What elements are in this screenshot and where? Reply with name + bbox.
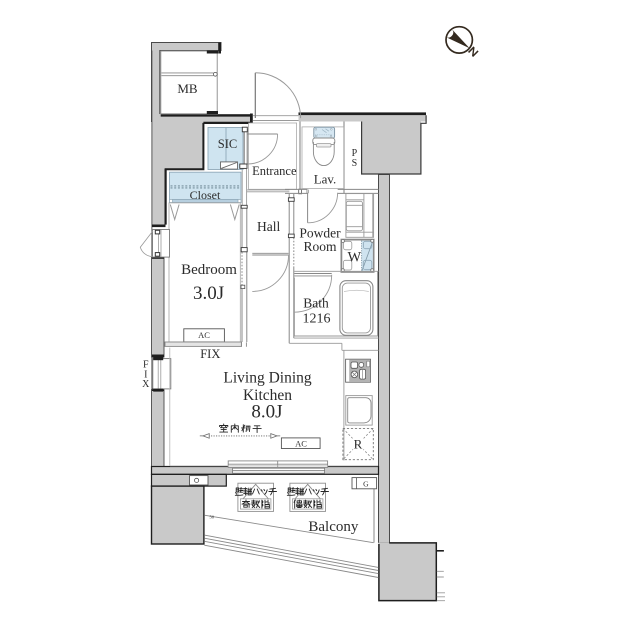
svg-text:Hall: Hall (257, 219, 280, 234)
svg-text:Entrance: Entrance (252, 164, 297, 178)
svg-text:X: X (142, 379, 150, 390)
svg-text:AC: AC (295, 438, 307, 448)
svg-text:FIX: FIX (200, 347, 220, 361)
svg-text:SIC: SIC (218, 137, 237, 151)
svg-text:G: G (363, 480, 369, 489)
svg-text:Bedroom: Bedroom (181, 262, 237, 278)
svg-text:8.0J: 8.0J (251, 401, 282, 422)
svg-text:Room: Room (303, 239, 337, 254)
svg-text:Lav.: Lav. (314, 171, 337, 186)
svg-text:S: S (352, 158, 358, 169)
svg-text:Closet: Closet (190, 188, 221, 202)
svg-text:Living Dining: Living Dining (223, 370, 312, 387)
svg-text:3.0J: 3.0J (193, 283, 224, 304)
svg-text:Bath: Bath (303, 296, 329, 311)
svg-text:MB: MB (177, 81, 198, 96)
svg-text:R: R (354, 436, 363, 451)
svg-text:Balcony: Balcony (308, 519, 358, 535)
svg-text:50: 50 (210, 515, 215, 520)
svg-text:AC: AC (198, 330, 210, 340)
svg-text:1216: 1216 (303, 312, 331, 327)
svg-text:W: W (347, 250, 361, 266)
